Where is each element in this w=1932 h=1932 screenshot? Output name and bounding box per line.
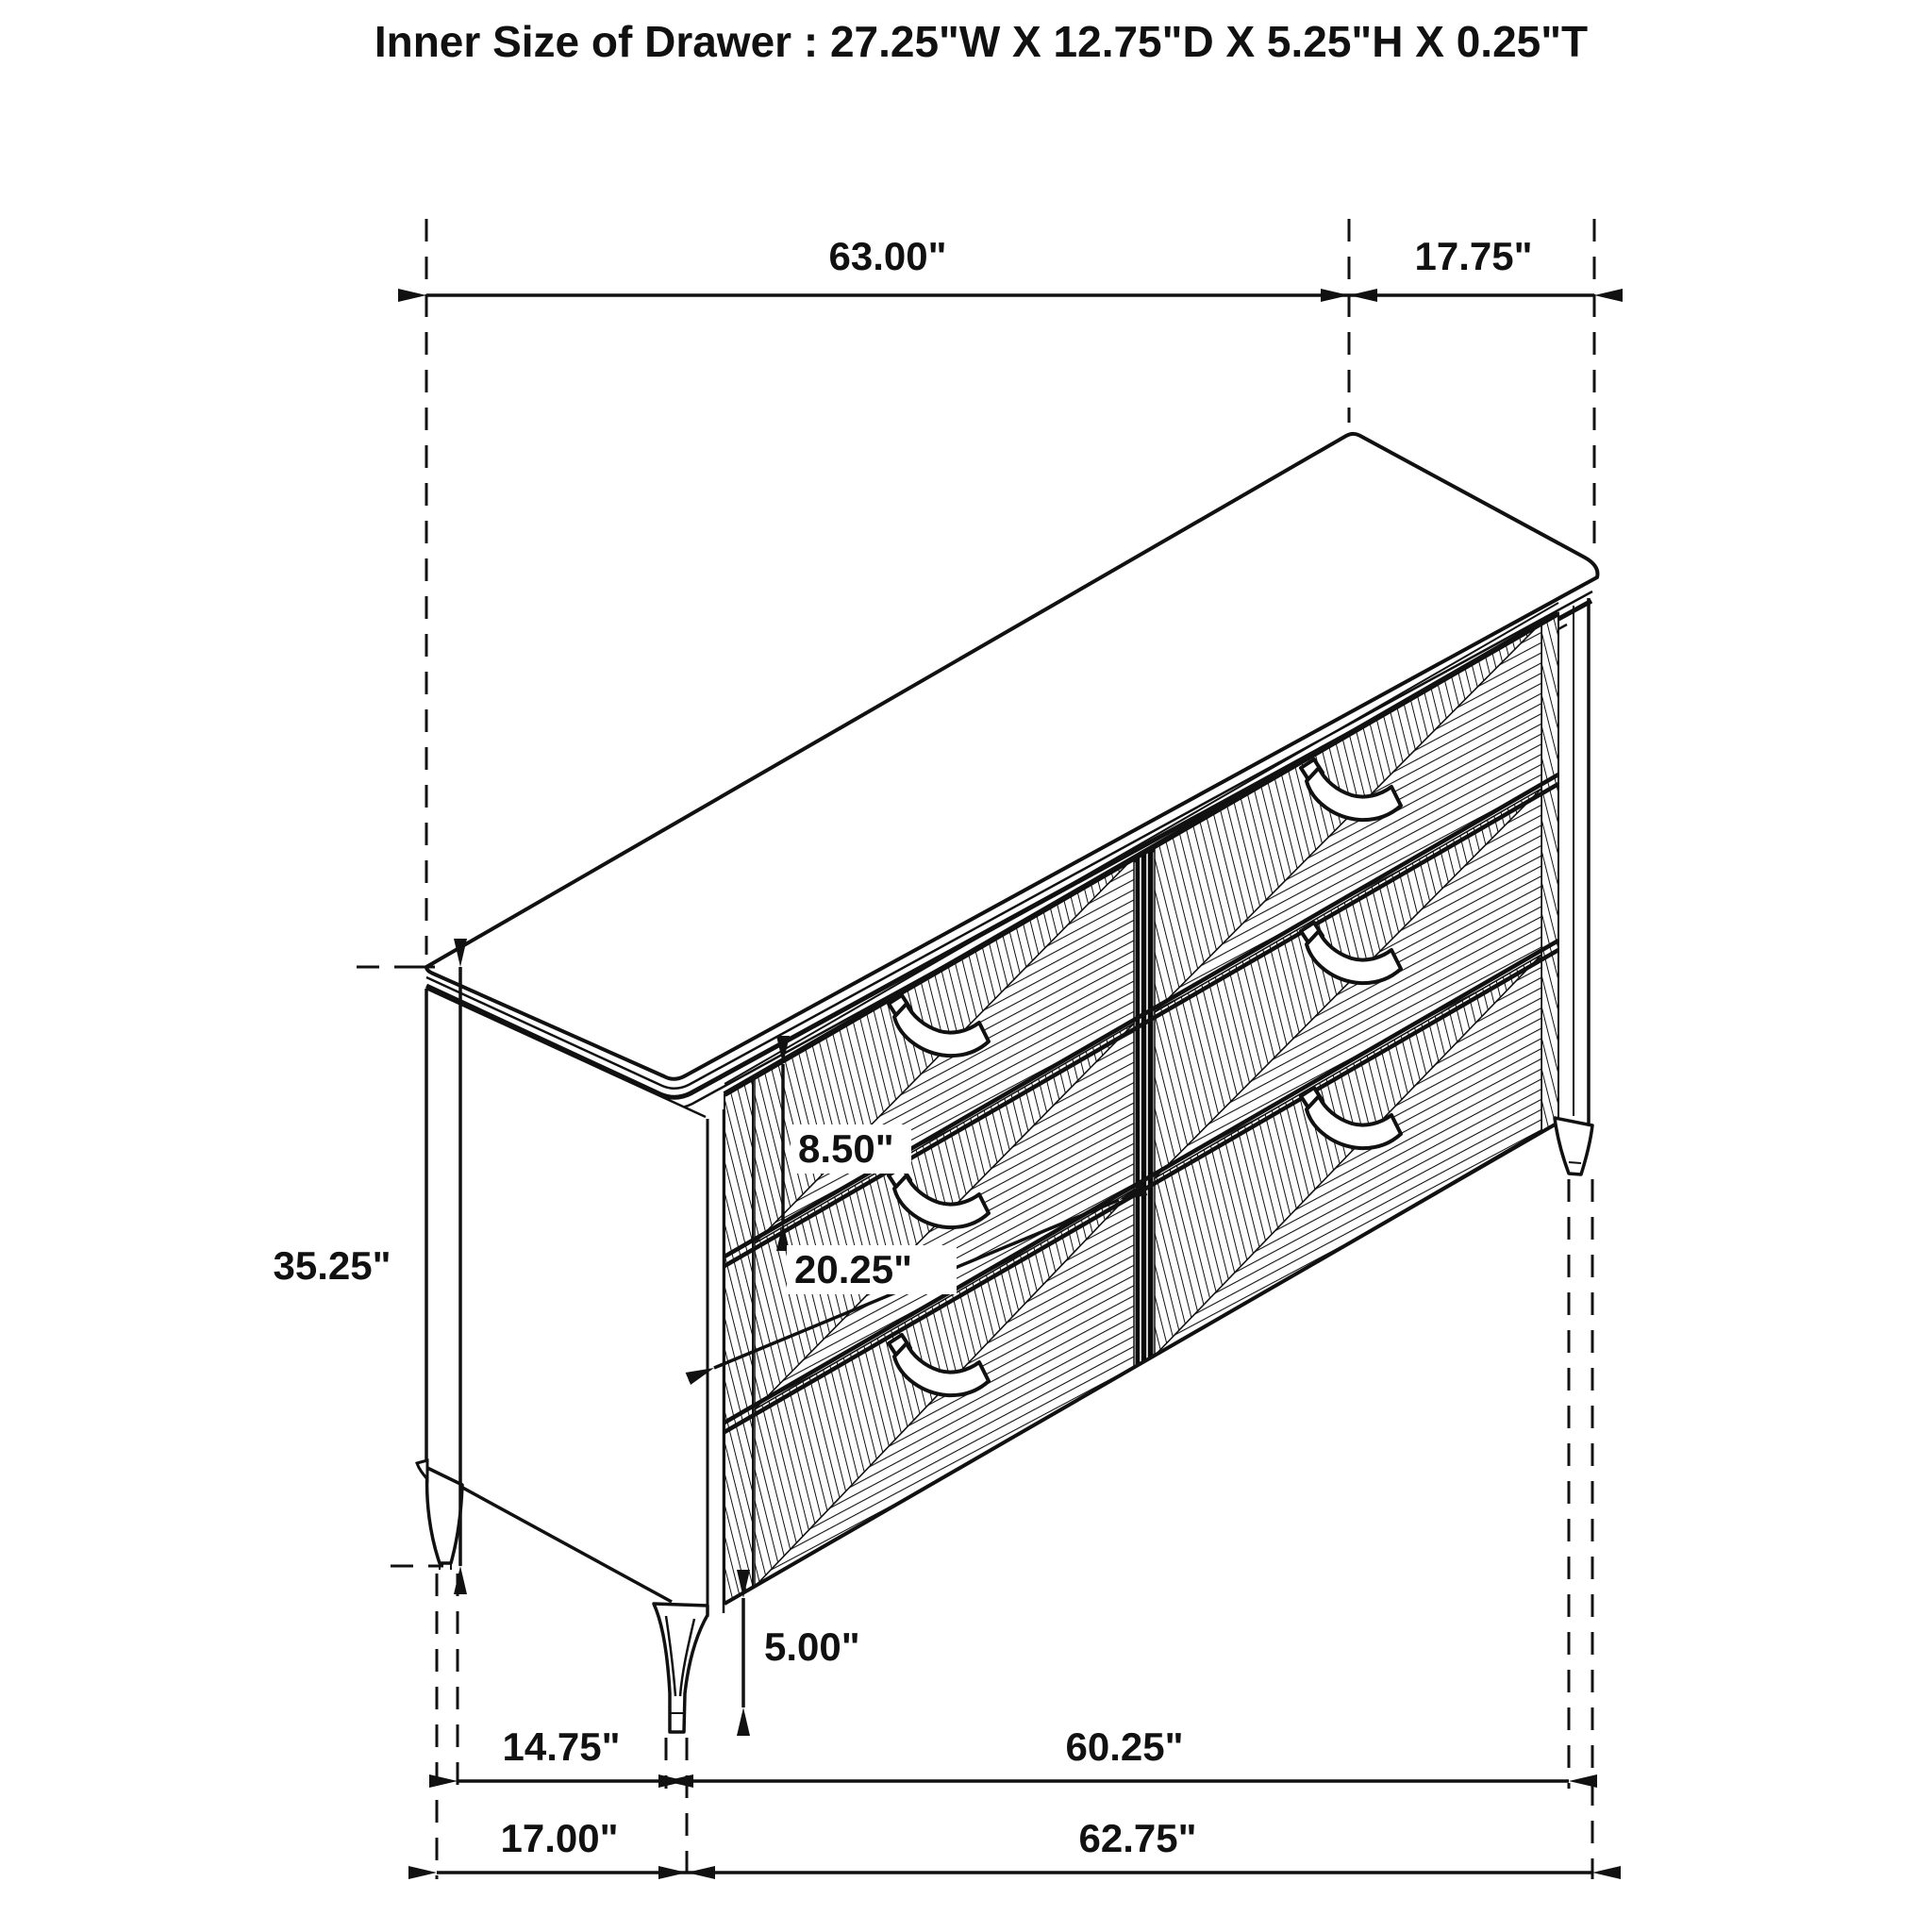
dimension-label-leg-span-width: 60.25" bbox=[1065, 1724, 1183, 1769]
right-corner-post bbox=[1574, 598, 1589, 1124]
dimension-label-base-width: 62.75" bbox=[1078, 1816, 1196, 1860]
dimension-label-drawer-front-width: 20.25" bbox=[794, 1247, 912, 1291]
front-left-gap-band bbox=[724, 1078, 753, 1604]
drawing-title: Inner Size of Drawer : 27.25"W X 12.75"D… bbox=[375, 17, 1588, 66]
dimension-front-leg-inset: 14.75" bbox=[458, 1724, 665, 1781]
front-right-gap-band bbox=[1541, 613, 1558, 1132]
left-end-panel bbox=[426, 989, 724, 1617]
dimension-base-depth: 17.00" bbox=[437, 1816, 687, 1873]
dimension-label-drawer-front-height: 8.50" bbox=[798, 1126, 894, 1171]
dimension-label-overall-depth: 17.75" bbox=[1414, 234, 1532, 278]
dimension-leg-height: 5.00" bbox=[743, 1598, 860, 1707]
dimension-overall-depth: 17.75" bbox=[1349, 234, 1594, 295]
front-right-leg bbox=[1555, 1118, 1592, 1174]
dimension-leg-span-width: 60.25" bbox=[687, 1724, 1569, 1781]
dimension-label-overall-width: 63.00" bbox=[828, 234, 946, 278]
dresser-figure bbox=[417, 434, 1597, 1732]
dimension-label-overall-height: 35.25" bbox=[273, 1243, 391, 1288]
dimension-base-width: 62.75" bbox=[687, 1816, 1592, 1873]
center-divider bbox=[1136, 847, 1153, 1366]
dresser-dimension-drawing: Inner Size of Drawer : 27.25"W X 12.75"D… bbox=[0, 0, 1932, 1932]
dimension-label-leg-height: 5.00" bbox=[764, 1624, 860, 1669]
dimension-label-front-leg-inset: 14.75" bbox=[502, 1724, 620, 1769]
dimension-label-base-depth: 17.00" bbox=[500, 1816, 618, 1860]
dimension-overall-width: 63.00" bbox=[426, 234, 1349, 295]
front-center-leg bbox=[654, 1604, 708, 1732]
